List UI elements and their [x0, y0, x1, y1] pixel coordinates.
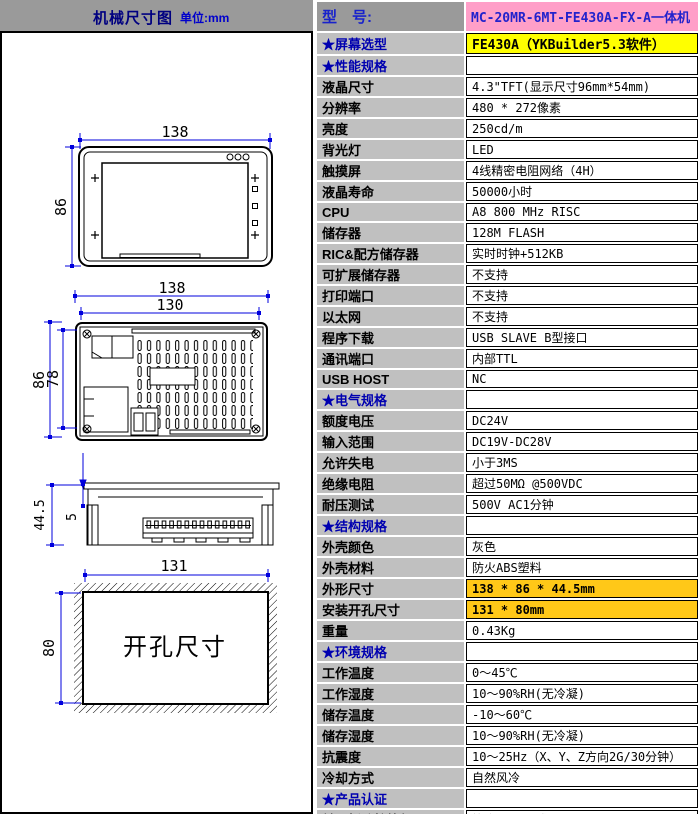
spec-row: ★结构规格 — [317, 516, 698, 535]
spec-row-value: 灰色 — [466, 537, 698, 556]
spec-row-value: LED — [466, 140, 698, 159]
mechanical-title: 机械尺寸图 — [93, 7, 173, 28]
spec-row: 分辨率480 * 272像素 — [317, 98, 698, 117]
spec-sheet-page: 机械尺寸图 单位:mm — [0, 0, 700, 814]
spec-row: 储存湿度10～90%RH(无冷凝) — [317, 726, 698, 745]
spec-row: 打印端口不支持 — [317, 286, 698, 305]
spec-row: ★性能规格 — [317, 56, 698, 75]
spec-row-value: 10～90%RH(无冷凝) — [466, 726, 698, 745]
spec-row-value: 超过50MΩ @500VDC — [466, 474, 698, 493]
spec-row-label: 冷却方式 — [317, 768, 464, 787]
spec-row-label: 工作湿度 — [317, 684, 464, 703]
spec-row-value: 50000小时 — [466, 182, 698, 201]
spec-row-label: 可扩展储存器 — [317, 265, 464, 284]
spec-row-value — [466, 516, 698, 535]
spec-row: 安装开孔尺寸131 * 80mm — [317, 600, 698, 619]
spec-row: 额度电压DC24V — [317, 411, 698, 430]
dim-side-depth: 44.5 — [33, 499, 48, 530]
spec-table-area: 型 号:MC-20MR-6MT-FE430A-FX-A一体机★屏幕选型FE430… — [315, 0, 700, 814]
spec-row-value: 防火ABS塑料 — [466, 558, 698, 577]
mechanical-drawing: 138 86 — [2, 33, 311, 812]
spec-row: 触摸屏4线精密电阻网络（4H） — [317, 161, 698, 180]
spec-row: ★屏幕选型FE430A（YKBuilder5.3软件） — [317, 33, 698, 54]
spec-row-label: 储存温度 — [317, 705, 464, 724]
spec-row-label: 储存湿度 — [317, 726, 464, 745]
spec-row-label: 抗震度 — [317, 747, 464, 766]
spec-row: ★电气规格 — [317, 390, 698, 409]
spec-row-label: ★结构规格 — [317, 516, 464, 535]
dim-front-height: 86 — [52, 198, 70, 216]
spec-row-label: ★电气规格 — [317, 390, 464, 409]
spec-row-value: DC19V-DC28V — [466, 432, 698, 451]
spec-row-label: 安装开孔尺寸 — [317, 600, 464, 619]
front-view — [79, 147, 272, 266]
spec-row-value: 250cd/m — [466, 119, 698, 138]
spec-row-value: 不支持 — [466, 286, 698, 305]
spec-row-value — [466, 390, 698, 409]
spec-row: 程序下载USB SLAVE B型接口 — [317, 328, 698, 347]
spec-row-value: 10～90%RH(无冷凝) — [466, 684, 698, 703]
spec-row: 可扩展储存器不支持 — [317, 265, 698, 284]
spec-row-value: -10～60℃ — [466, 705, 698, 724]
spec-row-value: 不支持 — [466, 307, 698, 326]
mechanical-header: 机械尺寸图 单位:mm — [0, 0, 313, 31]
spec-row: 允许失电小于3MS — [317, 453, 698, 472]
spec-row-label: 型 号: — [317, 2, 464, 31]
spec-row: 储存温度-10～60℃ — [317, 705, 698, 724]
spec-row: 亮度250cd/m — [317, 119, 698, 138]
dim-cutout-height: 80 — [40, 639, 58, 657]
spec-row-label: 外壳颜色 — [317, 537, 464, 556]
spec-row-value: NC — [466, 370, 698, 388]
side-view — [84, 483, 279, 545]
spec-row-label: 背光灯 — [317, 140, 464, 159]
spec-row-value: 自然风冷 — [466, 768, 698, 787]
front-view-dimensions — [65, 133, 272, 268]
spec-row-label: 额度电压 — [317, 411, 464, 430]
spec-row-label: ★性能规格 — [317, 56, 464, 75]
spec-row: 前面板防护等级符合IP65要求 — [317, 810, 698, 814]
spec-row: 通讯端口内部TTL — [317, 349, 698, 368]
dim-rear-inner-height: 78 — [44, 370, 62, 388]
spec-row: 以太网不支持 — [317, 307, 698, 326]
spec-row-label: 打印端口 — [317, 286, 464, 305]
spec-row-value: 4.3"TFT(显示尺寸96mm*54mm) — [466, 77, 698, 96]
spec-row-label: USB HOST — [317, 370, 464, 388]
dim-front-width: 138 — [161, 123, 188, 141]
spec-row-label: 程序下载 — [317, 328, 464, 347]
spec-row-label: 前面板防护等级 — [317, 810, 464, 814]
spec-row: 耐压测试500V AC1分钟 — [317, 495, 698, 514]
spec-row: 冷却方式自然风冷 — [317, 768, 698, 787]
spec-row-value — [466, 56, 698, 75]
spec-row-value: 小于3MS — [466, 453, 698, 472]
spec-row-label: 通讯端口 — [317, 349, 464, 368]
spec-row: 工作温度0～45℃ — [317, 663, 698, 682]
spec-row-label: 输入范围 — [317, 432, 464, 451]
rear-view — [76, 323, 267, 440]
spec-row: 背光灯LED — [317, 140, 698, 159]
spec-row: 工作湿度10～90%RH(无冷凝) — [317, 684, 698, 703]
spec-row: 抗震度10～25Hz（X、Y、Z方向2G/30分钟） — [317, 747, 698, 766]
dim-rear-inner-width: 130 — [156, 296, 183, 314]
spec-row-value: 0.43Kg — [466, 621, 698, 640]
spec-row: RIC&配方储存器实时时钟+512KB — [317, 244, 698, 263]
spec-row: 重量0.43Kg — [317, 621, 698, 640]
spec-row-label: 以太网 — [317, 307, 464, 326]
spec-row-label: 触摸屏 — [317, 161, 464, 180]
spec-row: 绝缘电阻超过50MΩ @500VDC — [317, 474, 698, 493]
spec-row: 液晶寿命50000小时 — [317, 182, 698, 201]
dim-cutout-width: 131 — [160, 557, 187, 575]
dim-rear-width: 138 — [158, 279, 185, 297]
spec-row-value: 10～25Hz（X、Y、Z方向2G/30分钟） — [466, 747, 698, 766]
dim-side-bezel: 5 — [65, 513, 80, 521]
spec-row: 外壳材料防火ABS塑料 — [317, 558, 698, 577]
spec-row-value: USB SLAVE B型接口 — [466, 328, 698, 347]
spec-row-value: 480 * 272像素 — [466, 98, 698, 117]
spec-row-label: 外壳材料 — [317, 558, 464, 577]
spec-row-label: 允许失电 — [317, 453, 464, 472]
spec-row-value: 实时时钟+512KB — [466, 244, 698, 263]
spec-row: USB HOSTNC — [317, 370, 698, 388]
spec-table-body: 型 号:MC-20MR-6MT-FE430A-FX-A一体机★屏幕选型FE430… — [317, 2, 698, 814]
spec-row: ★产品认证 — [317, 789, 698, 808]
spec-row-value: 符合IP65要求 — [466, 810, 698, 814]
spec-row-value: 128M FLASH — [466, 223, 698, 242]
spec-row: ★环境规格 — [317, 642, 698, 661]
spec-row-label: 液晶尺寸 — [317, 77, 464, 96]
spec-row: CPUA8 800 MHz RISC — [317, 203, 698, 221]
drawing-panel: 138 86 — [0, 31, 313, 814]
spec-row-label: 液晶寿命 — [317, 182, 464, 201]
spec-row-value: A8 800 MHz RISC — [466, 203, 698, 221]
spec-row-value: FE430A（YKBuilder5.3软件） — [466, 33, 698, 54]
spec-row-value — [466, 642, 698, 661]
spec-row: 外形尺寸138 * 86 * 44.5mm — [317, 579, 698, 598]
spec-row-label: 储存器 — [317, 223, 464, 242]
spec-row: 储存器128M FLASH — [317, 223, 698, 242]
spec-row-label: 绝缘电阻 — [317, 474, 464, 493]
spec-row: 液晶尺寸4.3"TFT(显示尺寸96mm*54mm) — [317, 77, 698, 96]
spec-row: 输入范围DC19V-DC28V — [317, 432, 698, 451]
spec-row-value — [466, 789, 698, 808]
cutout-label: 开孔尺寸 — [123, 633, 227, 661]
spec-row-value: 131 * 80mm — [466, 600, 698, 619]
unit-label: 单位:mm — [180, 9, 229, 26]
spec-row-label: ★屏幕选型 — [317, 33, 464, 54]
spec-table: 型 号:MC-20MR-6MT-FE430A-FX-A一体机★屏幕选型FE430… — [315, 0, 700, 814]
spec-row: 外壳颜色灰色 — [317, 537, 698, 556]
spec-row-label: ★产品认证 — [317, 789, 464, 808]
spec-row-value: DC24V — [466, 411, 698, 430]
spec-row-label: 亮度 — [317, 119, 464, 138]
spec-row-label: ★环境规格 — [317, 642, 464, 661]
spec-row-value: 不支持 — [466, 265, 698, 284]
spec-row-label: CPU — [317, 203, 464, 221]
spec-row-value: 0～45℃ — [466, 663, 698, 682]
spec-row-value: 4线精密电阻网络（4H） — [466, 161, 698, 180]
spec-row: 型 号:MC-20MR-6MT-FE430A-FX-A一体机 — [317, 2, 698, 31]
spec-row-label: 重量 — [317, 621, 464, 640]
spec-row-label: 外形尺寸 — [317, 579, 464, 598]
spec-row-label: RIC&配方储存器 — [317, 244, 464, 263]
spec-row-label: 工作温度 — [317, 663, 464, 682]
spec-row-label: 分辨率 — [317, 98, 464, 117]
spec-row-value: 内部TTL — [466, 349, 698, 368]
spec-row-value: MC-20MR-6MT-FE430A-FX-A一体机 — [466, 2, 698, 31]
spec-row-value: 138 * 86 * 44.5mm — [466, 579, 698, 598]
spec-row-label: 耐压测试 — [317, 495, 464, 514]
spec-row-value: 500V AC1分钟 — [466, 495, 698, 514]
